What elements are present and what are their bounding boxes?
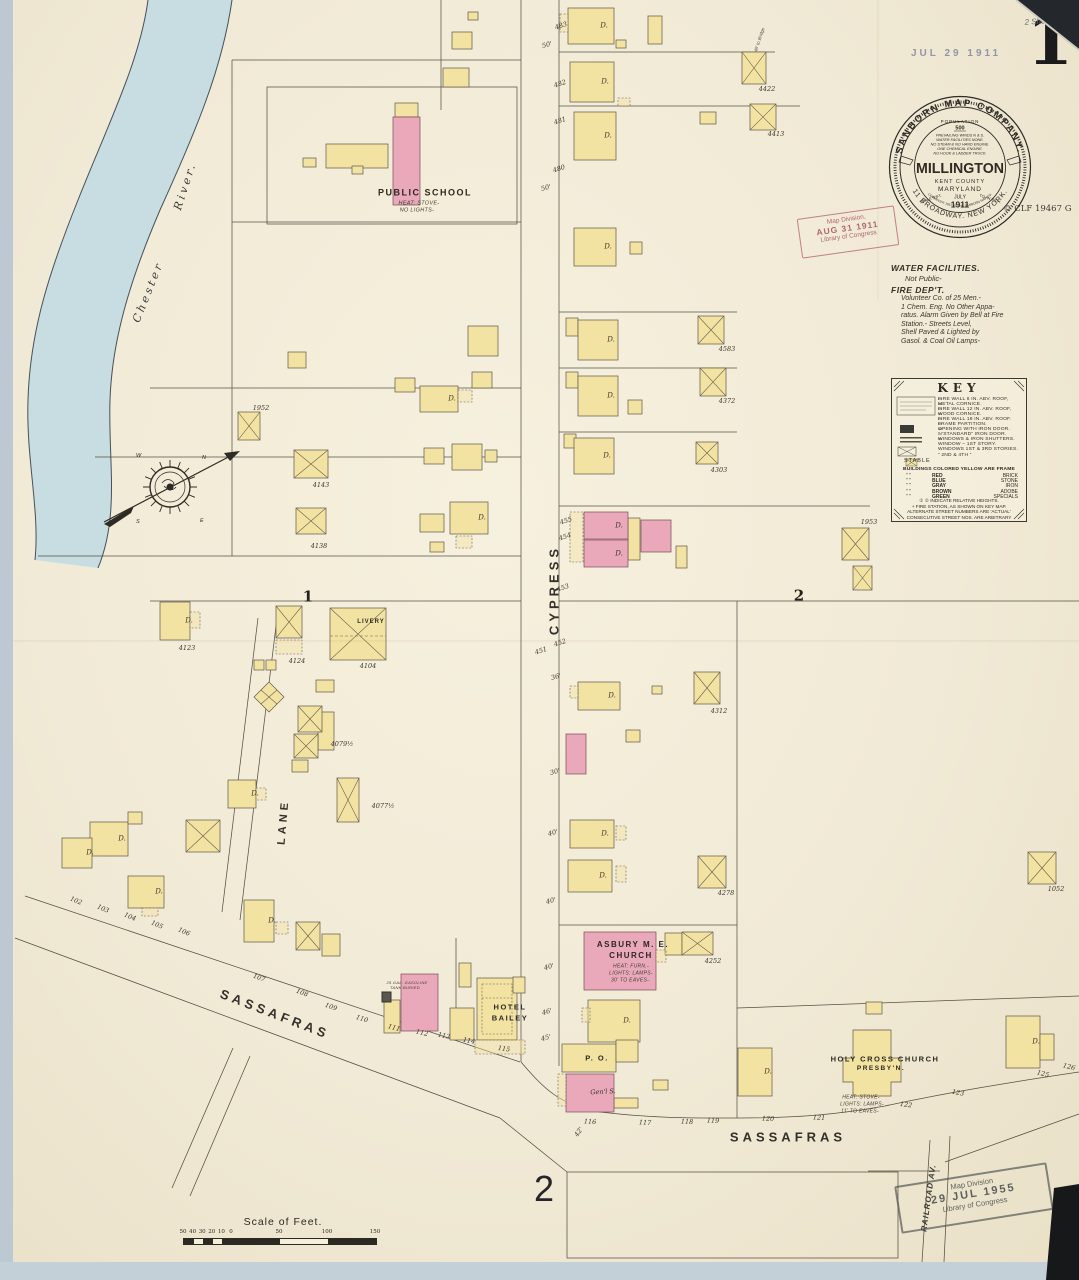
label-dlbl: D. bbox=[603, 453, 611, 460]
label-num: 4077½ bbox=[372, 803, 395, 810]
svg-text:N: N bbox=[202, 455, 206, 461]
label-num: 4583 bbox=[719, 346, 736, 353]
label-bnote: NO LIGHTS- bbox=[400, 208, 434, 214]
key-symbol-definitions: FIRE WALL 6 IN. ABV. ROOF, METAL CORNICE… bbox=[938, 397, 1024, 458]
label-dlbl: D. bbox=[478, 515, 486, 522]
fire-dept-line: 1 Chem. Eng. No Other Appa- bbox=[891, 304, 1023, 313]
scanned-map-page: { "page": { "sheet_number": "1", "bottom… bbox=[0, 0, 1079, 1280]
fire-dept-line: Gasol. & Coal Oil Lamps- bbox=[891, 338, 1023, 347]
scale-bar-rule bbox=[183, 1238, 377, 1245]
label-dlbl: D. bbox=[86, 850, 94, 857]
scan-edge-left bbox=[0, 0, 13, 1280]
label-dlbl: D. bbox=[185, 618, 193, 625]
key-line: ” 2ND & 4TH ” bbox=[938, 453, 1024, 458]
label-bname: BAILEY bbox=[492, 1014, 529, 1022]
label-dlbl: D. bbox=[601, 79, 609, 86]
label-num: 4372 bbox=[719, 398, 736, 405]
fire-dept-line: Shell Paved & Lighted by bbox=[891, 329, 1023, 338]
label-bname: CHURCH bbox=[609, 952, 653, 960]
label-bname: PUBLIC SCHOOL bbox=[378, 189, 472, 198]
seal-city-name: MILLINGTON bbox=[916, 161, 1004, 177]
svg-text:W: W bbox=[136, 453, 142, 459]
scale-title: Scale of Feet. bbox=[213, 1216, 353, 1228]
fire-dept-line: Volunteer Co. of 25 Men.- bbox=[891, 295, 1023, 304]
label-bname: PRESBY'N. bbox=[857, 1066, 905, 1073]
label-bnote: TANK BURIED bbox=[390, 986, 420, 990]
seal-population-label: POPULATION bbox=[941, 119, 980, 124]
label-snum: 119 bbox=[707, 1118, 720, 1125]
label-bnote: HEAT: STOVE- bbox=[842, 1096, 880, 1101]
label-sheet2: 2 bbox=[534, 1171, 554, 1207]
scale-tick: 150 bbox=[370, 1229, 381, 1235]
key-footnote: CONSECUTIVE STREET NOS. ARE ARBITRARY bbox=[896, 515, 1022, 521]
scale-tick: 50 bbox=[276, 1229, 283, 1235]
label-bnote: 11' TO EAVES- bbox=[841, 1110, 879, 1115]
chester-river bbox=[28, 0, 232, 568]
fire-dept-line: ratus. Alarm Given by Bell at Fire bbox=[891, 312, 1023, 321]
key-line: WINDOWS 1ST & 3RD STORIES. bbox=[938, 447, 1024, 452]
label-dlbl: D. bbox=[251, 791, 259, 798]
label-num: 4422 bbox=[759, 86, 776, 93]
label-num: 4104 bbox=[360, 663, 377, 670]
label-dlbl: D. bbox=[615, 551, 623, 558]
label-num: 1952 bbox=[253, 405, 270, 412]
svg-text:S: S bbox=[136, 519, 140, 525]
label-dlbl: D. bbox=[600, 23, 608, 30]
label-num: 4138 bbox=[311, 543, 328, 550]
scale-tick: 50 bbox=[180, 1229, 187, 1235]
label-dlbl: D. bbox=[448, 396, 456, 403]
label-dlbl: D. bbox=[599, 873, 607, 880]
key-stable-label: STABLE bbox=[904, 458, 931, 464]
water-facilities-body: Not Public- bbox=[891, 274, 1023, 283]
label-bnamesm: LIVERY bbox=[357, 619, 384, 625]
label-dlbl: D. bbox=[604, 244, 612, 251]
label-bnote: 30' TO EAVES- bbox=[611, 979, 649, 984]
label-num: 4123 bbox=[179, 645, 196, 652]
label-dlbl: D. bbox=[268, 918, 276, 925]
scale-of-feet: Scale of Feet. 50 40 30 20 10 0 50 100 1… bbox=[163, 1214, 403, 1256]
scale-tick: 40 bbox=[189, 1229, 196, 1235]
scale-tick: 30 bbox=[199, 1229, 206, 1235]
received-date-stamp: JUL 29 1911 bbox=[911, 48, 1001, 59]
fire-dept-line: Station.- Streets Level, bbox=[891, 321, 1023, 330]
water-facilities-title: WATER FACILITIES. bbox=[891, 263, 1023, 273]
scale-tick: 0 bbox=[229, 1229, 233, 1235]
label-dlbl: D. bbox=[604, 133, 612, 140]
seal-population-value: 500 bbox=[955, 126, 964, 132]
label-snum: 123 bbox=[951, 1089, 964, 1098]
seal-state: MARYLAND bbox=[938, 186, 982, 193]
key-color-intro: BUILDINGS COLORED YELLOW ARE FRAME bbox=[892, 467, 1026, 472]
key-footnotes: ① ② INDICATE RELATIVE HEIGHTS. + FIRE ST… bbox=[896, 498, 1022, 520]
label-bname: ASBURY M. E. bbox=[597, 941, 669, 949]
label-dlbl: D. bbox=[623, 1018, 631, 1025]
label-dlbl: D. bbox=[608, 693, 616, 700]
key-title: KEY bbox=[892, 381, 1026, 395]
key-color-table: ” ” RED BRICK ” ” BLUE STONE ” ” GRAY IR… bbox=[906, 474, 1018, 500]
label-dlbl: D. bbox=[155, 889, 163, 896]
label-num: 4079½ bbox=[331, 741, 354, 748]
scale-tick: 10 bbox=[218, 1229, 225, 1235]
map-key-box: KEY FIRE WALL 6 IN. ABV. ROOF, METAL COR… bbox=[891, 378, 1027, 522]
label-dlbl: Gen'l S. bbox=[590, 1088, 616, 1096]
scale-tick: 100 bbox=[322, 1229, 333, 1235]
seal-fact: WATER FACILITIES NONE. bbox=[936, 138, 983, 142]
label-dlbl: D. bbox=[607, 393, 615, 400]
label-num: 4413 bbox=[768, 131, 785, 138]
gasoline-tank bbox=[382, 992, 391, 1002]
label-snum: 114 bbox=[462, 1037, 475, 1046]
label-blocknum: 2 bbox=[794, 589, 804, 604]
seal-fact: ONE CHEMICAL ENGINE. bbox=[937, 147, 983, 151]
label-snum: 116 bbox=[584, 1118, 597, 1125]
label-bname: P. O. bbox=[585, 1054, 609, 1062]
label-snum: 122 bbox=[899, 1101, 912, 1109]
label-blocknum: 1 bbox=[303, 590, 313, 605]
label-bnote: HEAT: STOVE- bbox=[399, 201, 440, 207]
label-num: 4278 bbox=[718, 890, 735, 897]
scan-edge-bottom bbox=[0, 1262, 1079, 1280]
label-bname: HOTEL bbox=[494, 1003, 527, 1011]
label-street: SASSAFRAS bbox=[730, 1131, 846, 1144]
label-snum: 120 bbox=[762, 1116, 775, 1123]
paper-fold-crease-horizontal bbox=[13, 640, 1079, 643]
label-num: 4143 bbox=[313, 482, 330, 489]
label-bnote: LIGHTS: LAMPS- bbox=[609, 972, 653, 977]
label-num: 4312 bbox=[711, 708, 728, 715]
label-snum: 121 bbox=[813, 1114, 826, 1121]
fire-dept-title: FIRE DEP'T. bbox=[891, 285, 1023, 295]
seal-fact: PREVAILING WINDS N & S. bbox=[936, 134, 984, 138]
water-fire-notes: WATER FACILITIES. Not Public- FIRE DEP'T… bbox=[891, 263, 1023, 347]
seal-year: 1911 bbox=[951, 200, 970, 210]
label-dlbl: D. bbox=[764, 1069, 772, 1076]
label-num: 1953 bbox=[861, 519, 878, 526]
seal-fact: NO STEAM & NO HAND ENGINE. bbox=[931, 143, 990, 147]
label-bnote: LIGHTS: LAMPS- bbox=[840, 1103, 884, 1108]
key-footnote: ALTERNATE STREET NUMBERS ARE 'ACTUAL' bbox=[896, 509, 1022, 515]
svg-text:E: E bbox=[200, 518, 204, 524]
label-dlbl: D. bbox=[118, 836, 126, 843]
label-dlbl: D. bbox=[1032, 1039, 1040, 1046]
compass-rose: N W E S bbox=[104, 451, 240, 527]
seal-county: KENT COUNTY bbox=[935, 179, 985, 185]
scale-tick: 20 bbox=[208, 1229, 215, 1235]
seal-fact: NO HOOK & LADDER TRUCK. bbox=[933, 152, 986, 156]
map-paper-sheet: N W E S CYPRESSLANESASSAFRASSASSAFRASRAI… bbox=[13, 0, 1079, 1262]
label-num: 4303 bbox=[711, 467, 728, 474]
label-bname: HOLY CROSS CHURCH bbox=[831, 1055, 940, 1063]
label-snum: 117 bbox=[639, 1119, 652, 1126]
label-snum: 115 bbox=[497, 1045, 510, 1053]
label-dlbl: D. bbox=[615, 523, 623, 530]
label-snum: 118 bbox=[681, 1119, 694, 1126]
sanborn-company-seal: SANBORN MAP COMPANY. 11 BROADWAY. NEW YO… bbox=[879, 84, 1041, 250]
label-num: 4124 bbox=[289, 658, 306, 665]
label-num: 1052 bbox=[1048, 886, 1065, 893]
label-dlbl: D. bbox=[607, 337, 615, 344]
label-bnote: HEAT: FURN.- bbox=[613, 965, 649, 970]
label-num: 4252 bbox=[705, 958, 722, 965]
label-dlbl: D. bbox=[601, 831, 609, 838]
